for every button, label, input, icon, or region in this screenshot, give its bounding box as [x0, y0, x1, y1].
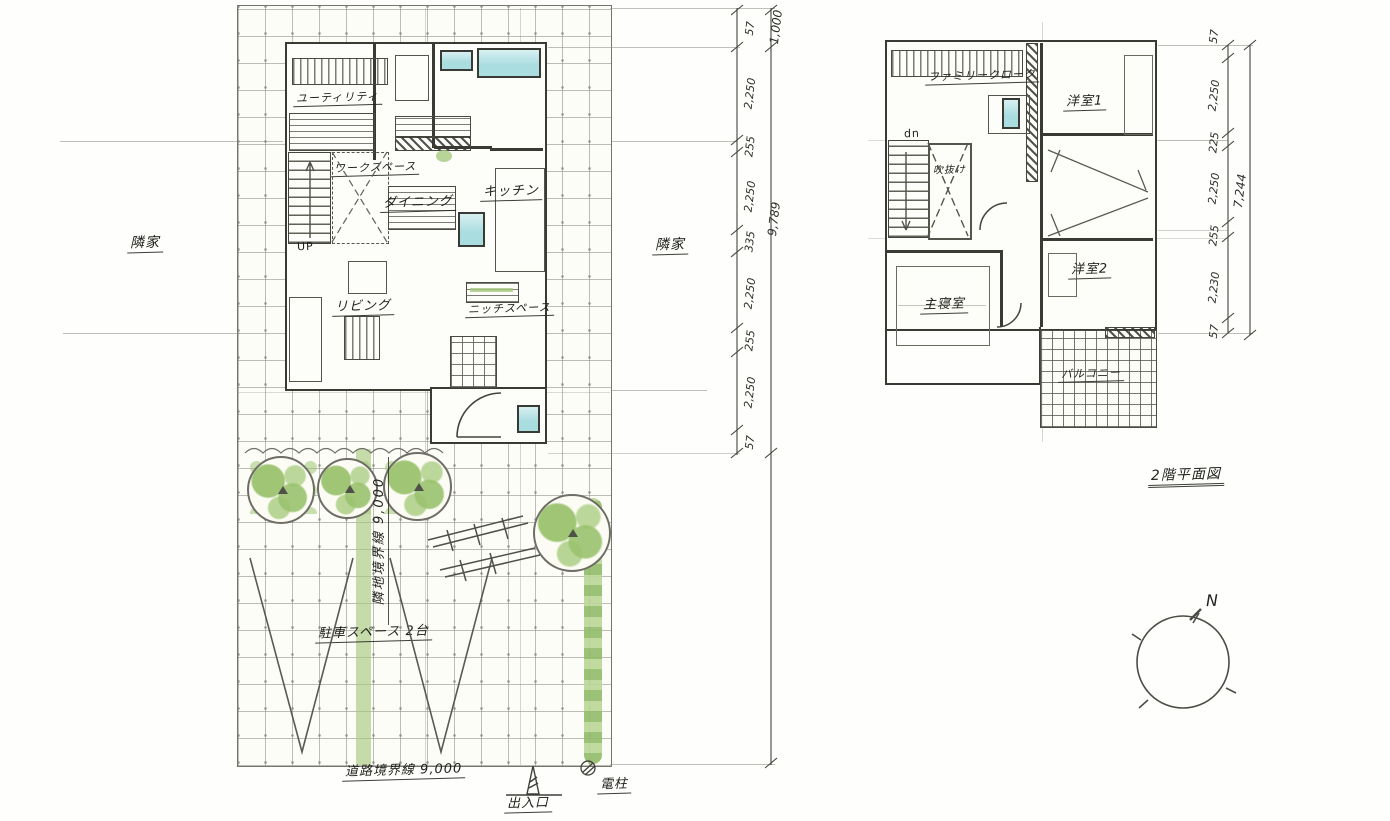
stairs-down-arrow — [902, 152, 910, 230]
garden-hedge-line — [245, 449, 443, 454]
stairs-up-arrow — [306, 162, 314, 238]
bicycle-sketch — [428, 516, 540, 581]
void-x-lines — [928, 143, 968, 236]
linework-overlay — [0, 0, 1390, 821]
floor2-dimension-lines — [1222, 40, 1256, 340]
floor2-door-arcs — [980, 203, 1021, 327]
pole-symbol — [581, 761, 595, 775]
drawing-sheet: 隣家 隣家 隣地境界線 9,000 道路境界線 9,000 出入口 電柱 駐車ス… — [0, 0, 1390, 821]
site-dimension-lines — [731, 5, 777, 768]
parking-stall-markings — [250, 558, 492, 752]
entrance-door-arc — [457, 393, 501, 437]
gate-marker — [506, 766, 562, 795]
compass — [1132, 609, 1236, 708]
bed-sketch-bedroom1 — [1048, 150, 1148, 236]
workspace-x-lines — [332, 152, 387, 242]
